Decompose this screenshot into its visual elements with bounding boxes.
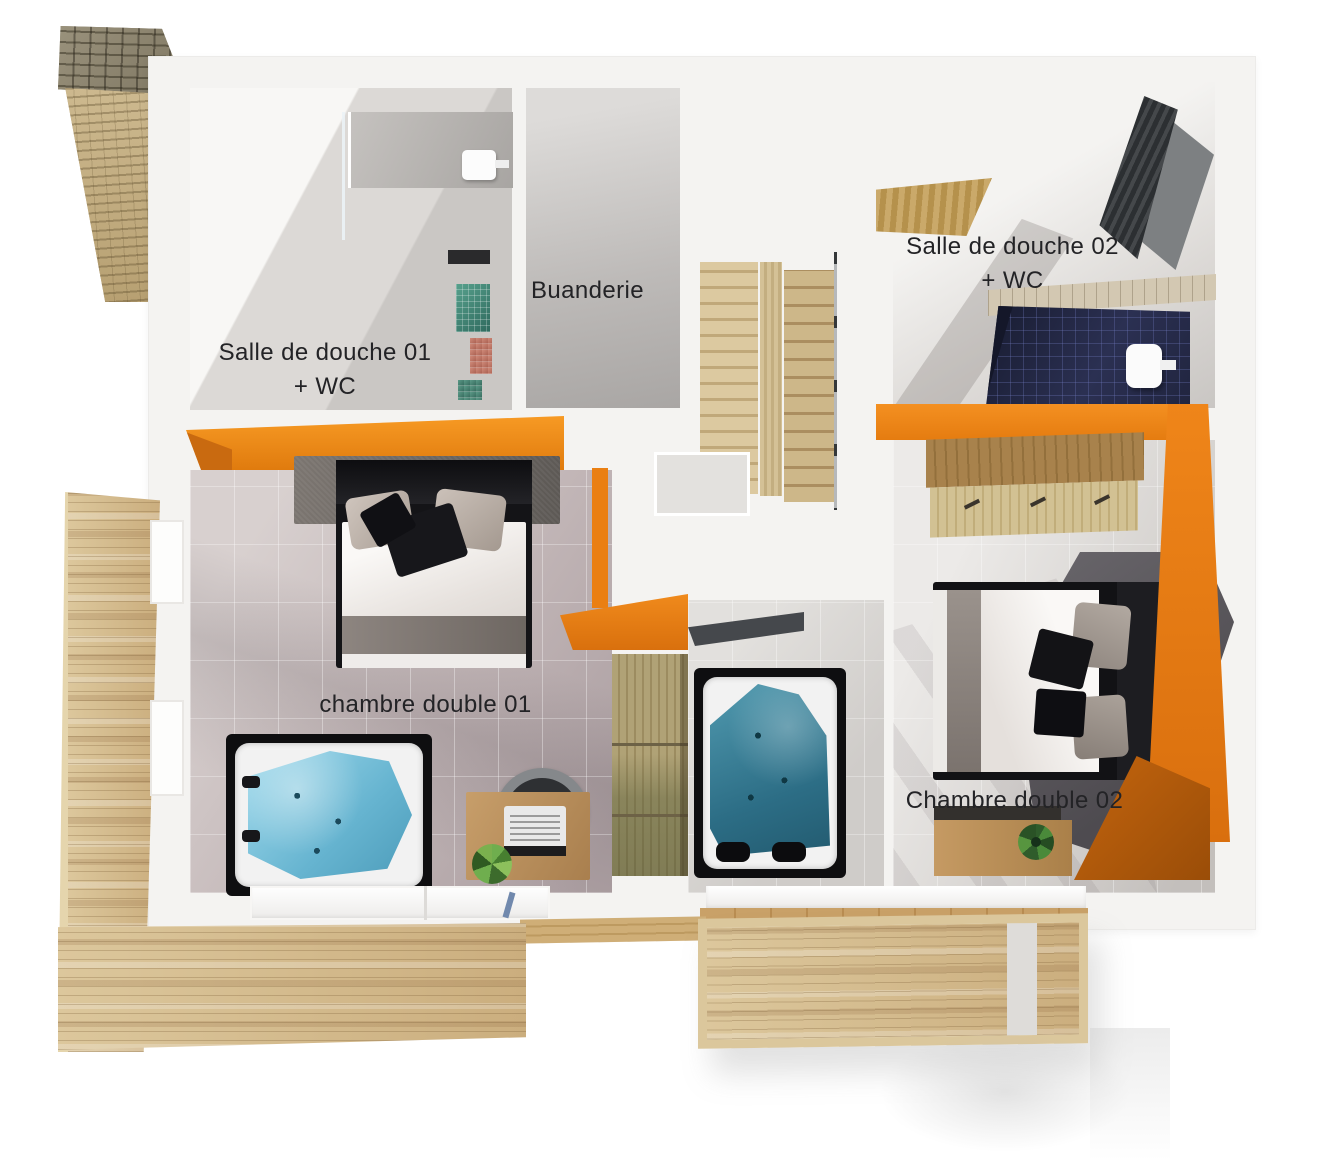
bed-runner (342, 616, 526, 654)
window-slot (150, 700, 184, 796)
bed-foot-sheet (933, 590, 947, 772)
floor-buanderie (526, 88, 680, 408)
shower-fixture (462, 150, 496, 180)
label-line1: Salle de douche 01 (219, 339, 432, 366)
wardrobe-divider (612, 814, 688, 817)
wood-deck-strip (520, 916, 706, 943)
label-line1: Buanderie (531, 277, 644, 304)
bed-runner (947, 590, 981, 772)
bathroom1-counter (448, 250, 490, 264)
wardrobe-front (930, 480, 1138, 537)
window-opening (706, 886, 1086, 910)
mosaic-tile-panel (456, 284, 490, 332)
balcony-deck-right (698, 913, 1088, 1048)
toilet (1126, 344, 1162, 388)
room-label-chambre-double-01: chambre double 01 (278, 688, 573, 722)
orange-wall-chambre01-east (592, 468, 608, 608)
label-line1: chambre double 01 (319, 691, 531, 718)
spa-headrest (242, 830, 260, 842)
floor-plan-canvas: Salle de douche 01 + WC Buanderie Salle … (0, 0, 1335, 1166)
cushion (1033, 688, 1086, 737)
staircase-lower-flight (784, 270, 834, 502)
room-label-salle-de-douche-02: Salle de douche 02 + WC (855, 230, 1170, 298)
staircase-center-wall (760, 262, 782, 496)
label-line1: Chambre double 02 (906, 787, 1124, 814)
window-slot (150, 520, 184, 604)
spa-seat (772, 842, 806, 862)
room-label-chambre-double-02: Chambre double 02 (862, 784, 1167, 818)
shower-glass-partition (342, 112, 345, 240)
bed-foot-sheet (342, 654, 526, 668)
room-label-salle-de-douche-01: Salle de douche 01 + WC (170, 336, 480, 404)
staircase-railing (834, 252, 837, 510)
label-line1: Salle de douche 02 (906, 233, 1119, 260)
spa-tub-01 (226, 734, 432, 896)
double-bed-02 (933, 582, 1163, 780)
plant (472, 844, 512, 884)
spa-tub-02 (694, 668, 846, 878)
double-bed-01 (336, 460, 532, 668)
plant (1018, 824, 1054, 860)
wood-deck-bottom (58, 922, 526, 1050)
spa-seat (716, 842, 750, 862)
label-line2: + WC (981, 267, 1043, 294)
wardrobe-01 (612, 654, 688, 876)
wardrobe-top (926, 432, 1144, 488)
orange-wall-chambre02-north (876, 404, 1200, 440)
laptop (504, 806, 566, 856)
spa-headrest (242, 776, 260, 788)
wardrobe-divider (612, 743, 688, 746)
wardrobe-02 (926, 432, 1144, 538)
spa-water (248, 751, 412, 879)
wall-shadow (1090, 1028, 1170, 1160)
staircase-landing (654, 452, 750, 516)
room-label-buanderie: Buanderie (495, 274, 680, 308)
label-line2: + WC (294, 373, 356, 400)
